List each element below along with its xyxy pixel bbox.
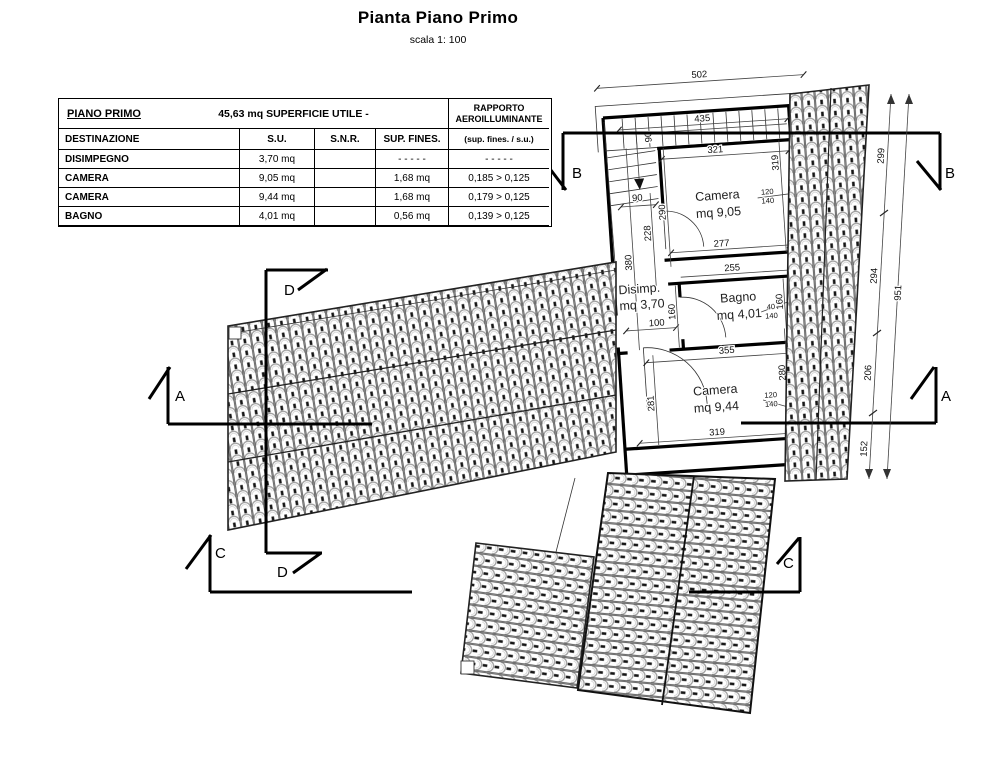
chain-294: 294: [869, 268, 881, 284]
chain-951: 951: [893, 285, 905, 301]
dim-win1-h: 140: [761, 196, 774, 206]
rapporto-line1: RAPPORTO: [474, 103, 525, 114]
row-disimpegno-name: DISIMPEGNO: [59, 150, 240, 169]
surface-summary: 45,63 mq SUPERFICIE UTILE -: [141, 108, 446, 120]
dim-v228: 228: [642, 225, 654, 242]
row-camera2-name: CAMERA: [59, 188, 240, 207]
dim-camera1-width: 321: [707, 144, 724, 156]
row-bagno-snr: [315, 207, 376, 226]
room-bagno-area: mq 4,01: [716, 306, 762, 323]
room-camera2-area: mq 9,44: [693, 399, 739, 416]
dim-camera1-bottom: 277: [713, 238, 730, 250]
dim-bagno-h-right: 160: [774, 293, 786, 310]
chimney: [461, 661, 474, 674]
dim-camera2-bottom: 319: [709, 427, 726, 439]
section-letter-d-top: D: [284, 282, 295, 299]
dimension-chain-right: 299 294 206 152 951: [859, 94, 913, 479]
row-bagno-su: 4,01 mq: [240, 207, 315, 226]
row-disimpegno-snr: [315, 150, 376, 169]
dim-overall-width: 502: [691, 69, 708, 81]
floor-label: PIANO PRIMO: [61, 108, 141, 120]
col-sup-fines: SUP. FINES.: [376, 129, 449, 150]
row-camera2-su: 9,44 mq: [240, 188, 315, 207]
dim-camera1-height: 319: [770, 154, 782, 171]
row-bagno-rapporto: 0,139 > 0,125: [449, 207, 549, 226]
row-camera1-supfines: 1,68 mq: [376, 169, 449, 188]
row-camera1-su: 9,05 mq: [240, 169, 315, 188]
row-disimpegno-supfines: - - - - -: [376, 150, 449, 169]
rapporto-header: RAPPORTO AEROILLUMINANTE: [449, 99, 549, 129]
dim-stair-run: 435: [694, 113, 711, 125]
surface-table: PIANO PRIMO 45,63 mq SUPERFICIE UTILE - …: [58, 98, 552, 227]
rapporto-line2: AEROILLUMINANTE: [456, 114, 543, 125]
row-camera2-rapporto: 0,179 > 0,125: [449, 188, 549, 207]
room-camera1-area: mq 9,05: [696, 204, 742, 221]
row-disimpegno-su: 3,70 mq: [240, 150, 315, 169]
dim-win3-h: 140: [765, 399, 778, 409]
dim-mid-width: 355: [718, 345, 735, 357]
dim-landing-width: 90: [632, 193, 643, 205]
dim-win2-h: 140: [765, 311, 778, 321]
room-camera2-name: Camera: [693, 382, 738, 399]
section-letter-b-left: B: [572, 165, 582, 182]
page-title: Pianta Piano Primo: [0, 8, 876, 28]
col-destinazione: DESTINAZIONE: [59, 129, 240, 150]
dim-camera2-h-left: 281: [646, 395, 658, 412]
room-disimpegno-area: mq 3,70: [619, 296, 665, 313]
section-letter-a-left: A: [175, 388, 185, 405]
chain-152: 152: [859, 441, 871, 457]
section-letter-d-bottom: D: [277, 564, 288, 581]
roof-left: [228, 262, 616, 530]
dim-bagno-width: 255: [724, 262, 741, 274]
table-header-row: PIANO PRIMO 45,63 mq SUPERFICIE UTILE -: [59, 99, 449, 129]
row-camera1-rapporto: 0,185 > 0,125: [449, 169, 549, 188]
room-bagno-name: Bagno: [720, 289, 757, 305]
room-labels: Camera mq 9,05 Bagno mq 4,01 Disimp. mq …: [612, 186, 768, 420]
drawing-sheet: 502 435 90 90 290 228 380 321 319 277 25…: [0, 0, 1006, 758]
section-letter-c-right: C: [783, 555, 794, 572]
row-camera1-snr: [315, 169, 376, 188]
section-letter-c-left: C: [215, 545, 226, 562]
section-letter-a-right: A: [941, 388, 951, 405]
chain-299: 299: [876, 148, 888, 164]
room-camera1-name: Camera: [695, 187, 740, 204]
dim-bagno-h-left: 160: [666, 304, 678, 321]
row-camera2-supfines: 1,68 mq: [376, 188, 449, 207]
row-bagno-name: BAGNO: [59, 207, 240, 226]
dim-door-width: 100: [648, 317, 665, 329]
chain-206: 206: [863, 365, 875, 381]
dim-v380: 380: [623, 254, 635, 271]
scale-label: scala 1: 100: [0, 34, 876, 46]
row-camera1-name: CAMERA: [59, 169, 240, 188]
row-camera2-snr: [315, 188, 376, 207]
room-disimpegno-name: Disimp.: [618, 281, 661, 298]
row-bagno-supfines: 0,56 mq: [376, 207, 449, 226]
col-rapporto: (sup. fines. / s.u.): [449, 129, 549, 150]
roof-lower-small: [461, 543, 594, 688]
row-disimpegno-rapporto: - - - - -: [449, 150, 549, 169]
section-letter-b-right: B: [945, 165, 955, 182]
chimney: [229, 327, 241, 339]
dim-v290: 290: [657, 204, 669, 221]
col-su: S.U.: [240, 129, 315, 150]
col-snr: S.N.R.: [315, 129, 376, 150]
